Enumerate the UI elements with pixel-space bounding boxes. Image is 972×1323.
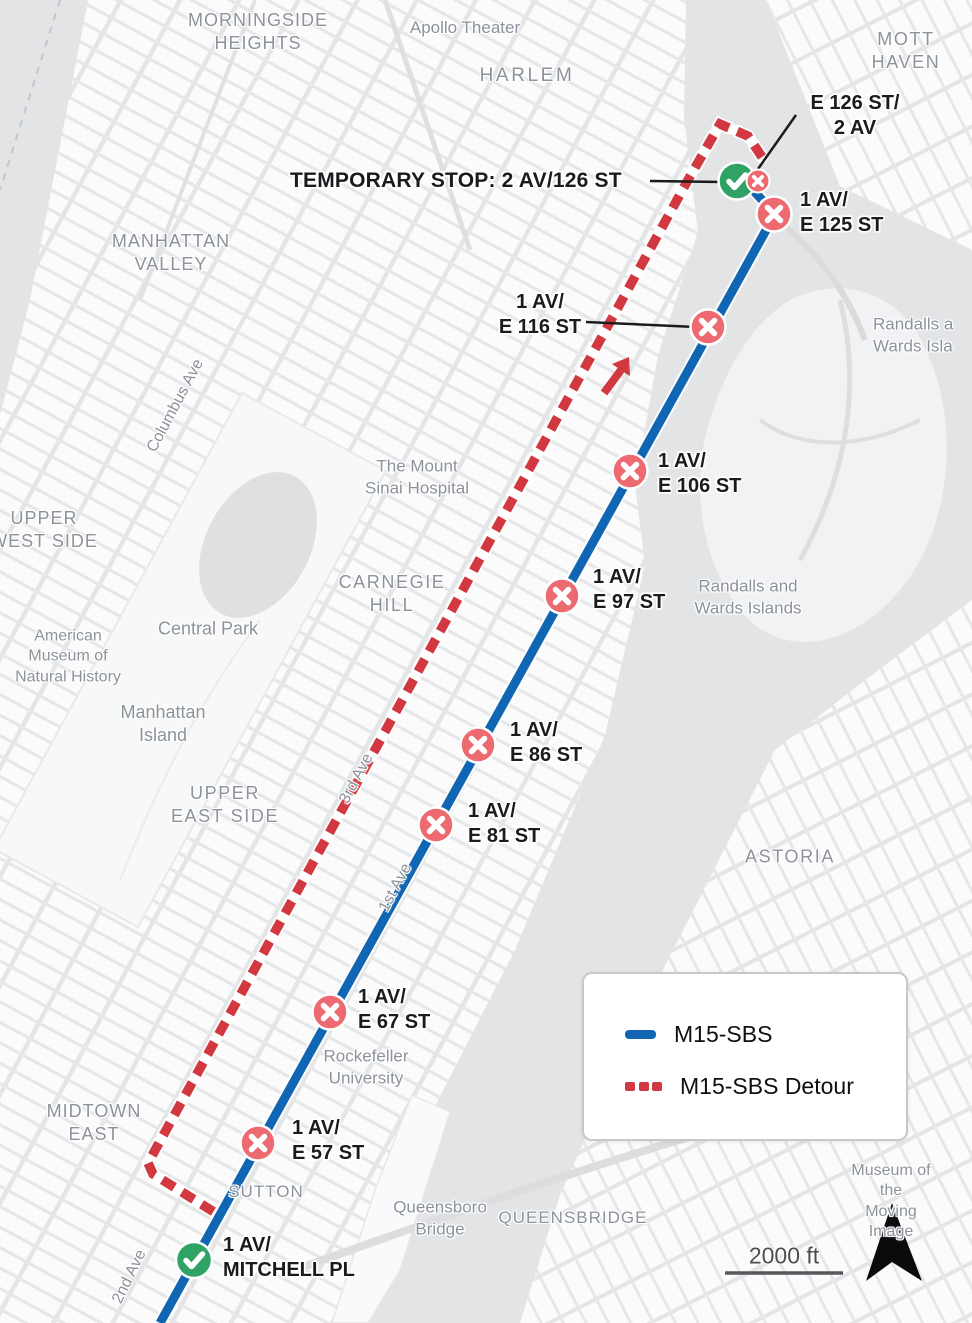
callout-line-temp-stop (650, 181, 722, 182)
stop-marker-closed-e106 (613, 454, 648, 489)
transit-detour-map: MORNINGSIDE HEIGHTS Apollo Theater HARLE… (0, 0, 972, 1323)
legend-row-detour: M15-SBS Detour (625, 1073, 854, 1100)
stop-marker-closed-e86 (461, 728, 496, 763)
legend-detour-label: M15-SBS Detour (680, 1073, 854, 1100)
detour-line-swatch (625, 1082, 662, 1091)
stop-marker-closed-e97 (545, 579, 580, 614)
scale-label: 2000 ft (749, 1243, 819, 1270)
stop-marker-open-mitchell-pl (176, 1242, 212, 1278)
legend-route-label: M15-SBS (674, 1021, 772, 1048)
stop-marker-closed-e125 (757, 197, 792, 232)
stop-marker-closed-e81 (419, 808, 454, 843)
stop-marker-closed-e67 (313, 995, 348, 1030)
stop-marker-closed-e126-2av (747, 170, 770, 193)
legend: M15-SBS M15-SBS Detour (582, 972, 908, 1141)
legend-row-route: M15-SBS (625, 1021, 772, 1048)
stop-marker-closed-e116 (691, 310, 726, 345)
route-line-swatch (625, 1030, 656, 1039)
stop-marker-closed-e57 (241, 1126, 276, 1161)
